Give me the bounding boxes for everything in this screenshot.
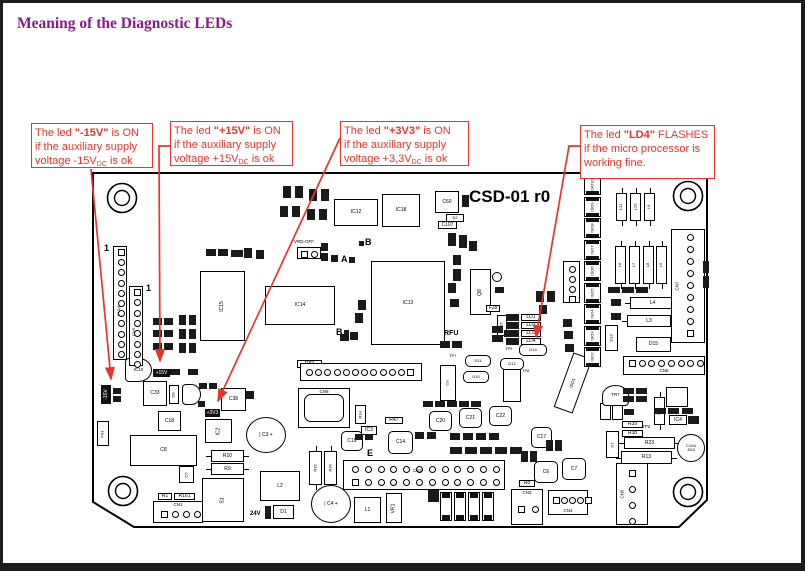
component-label: FS1 [101,430,105,437]
component-L10: L10 [630,193,641,221]
smd-chip [547,291,555,302]
smd-chip [495,447,507,454]
component-label: LD2 [526,323,535,328]
smd-chip [563,319,572,327]
pin-round [183,511,190,518]
component-label: +15V [156,371,168,376]
component-L4: L4 [630,297,675,309]
mounting-hole [116,484,131,499]
pin-round [493,479,500,486]
component-FS1: FS1 [97,421,109,446]
smd-chip [113,396,121,402]
component-D11: D11 [465,355,491,367]
smd-chip [153,318,162,325]
smd-chip [355,434,363,440]
component-S1: S1 [202,478,244,522]
component-C60: C60 [435,191,459,213]
component-label: ISO6 [591,266,595,275]
component-label: IC15 [220,301,225,312]
component-LD4: LD4 [521,338,541,345]
component-label: R36 [329,464,333,471]
smd-chip [471,401,481,407]
component-ISO2: ISO2 [584,347,601,367]
pin-round [365,466,372,473]
pin-round [442,479,449,486]
component-D14: D14 [519,344,547,356]
component-label: LD1 [526,315,535,320]
smd-chip [448,233,456,246]
component-IC4: IC4 [669,415,687,425]
callout-line3-end: is ok [422,153,448,165]
callout-line2: if the auxiliary supply [344,139,446,151]
smd-chip [319,209,327,220]
pin-round [429,466,436,473]
pin-round [687,282,694,289]
connector-label: CN1 [173,503,182,508]
component-label: L6 [618,263,622,267]
pin-round [311,251,318,258]
pin-round [380,369,387,376]
component-C22: C22 [489,406,512,426]
component-ISO5: ISO5 [584,283,601,303]
pin-round [561,497,568,504]
component-label: L7 [632,263,636,267]
pin-round [352,466,359,473]
smd-chip [359,241,364,246]
smd-chip [198,401,205,407]
pin-round [134,351,141,358]
pin-round [134,341,141,348]
callout--15v: The led "-15V" is ONif the auxiliary sup… [31,123,153,168]
smd-chip [636,396,647,402]
component-label: L2 [277,484,283,489]
pin-round [352,369,359,376]
component-label: L10 [634,204,638,211]
component-C7: C7 [562,458,586,480]
component-L6: L6 [615,246,626,284]
pin-round [118,290,125,297]
smd-chip [492,335,503,342]
pin-round [687,234,694,241]
silkscreen-text: VRD-OFF [294,240,314,245]
callout-suf: is ON [420,125,451,137]
component-label: C14 [396,440,405,445]
unit-subscript: DC [239,159,249,166]
pin-round [668,360,675,367]
unit-subscript: DC [412,159,422,166]
component-label: C20 [436,419,445,424]
component-R8: R8 [519,480,535,487]
component-label: R35 [314,464,318,471]
smd-chip [564,331,573,339]
pin-round [134,320,141,327]
pin-round [429,479,436,486]
component-C8: C8 [130,435,197,466]
component-ISO7: ISO7 [584,240,601,260]
component-IC12: IC12 [334,199,378,226]
smd-chip [423,401,433,407]
pin-round [687,258,694,265]
component-label: -15V [104,389,109,400]
component-IC18: IC18 [382,194,420,227]
smd-chip [506,338,519,345]
pin-round [639,360,646,367]
component-label: L3 [646,319,652,324]
callout-suf: FLASHES [655,129,708,141]
silkscreen-text: TP2 [642,425,650,430]
smd-chip [440,341,450,348]
pin-round [577,497,584,504]
smd-chip [349,257,355,263]
component-R47: R47 [385,417,403,424]
smd-chip [113,388,121,394]
smd-chip [624,409,634,415]
connector-label: CN7 [675,281,680,290]
smd-chip [340,334,349,341]
smd-chip [506,322,519,329]
pin-round [629,486,636,493]
component-L2: L2 [260,471,300,501]
pin-round [687,306,694,313]
component-label: | C3 + [259,433,272,438]
component-LD3: LD3 [521,330,541,337]
callout-line3: working fine. [584,157,646,169]
smd-chip [309,189,317,201]
pin-round [480,479,487,486]
component-label: D1 [280,510,286,515]
pin-round [306,369,313,376]
component-ISO8: ISO8 [584,218,601,238]
pin-1-square [407,369,414,376]
pin-round [398,369,405,376]
callout-+3v3: The led "+3V3" is ONif the auxiliary sup… [340,121,469,166]
smd-chip [280,206,288,217]
component-label: LD4 [526,339,535,344]
smd-chip [170,369,180,375]
component-C14: C14 [388,431,413,454]
component-label: D13 [610,334,614,341]
smd-chip [668,408,679,414]
pin-1-square [161,511,168,518]
led-name: "LD4" [624,129,655,141]
component-label: D10 [472,375,479,379]
component-label: R38 [628,431,637,436]
smd-chip [459,401,469,407]
smd-chip [179,343,186,353]
component-label: ISO7 [591,245,595,254]
silkscreen-text: TP7 [449,354,456,358]
pin-round [118,300,125,307]
component-label: VR1 [391,503,396,513]
smd-chip [682,408,693,414]
smd-chip [188,369,198,375]
component-C3+: | C3 + [246,417,286,453]
component-D7: D7 [606,431,619,458]
component-C38: C38 [221,388,246,411]
mounting-hole [115,191,130,206]
pin-round [172,511,179,518]
mounting-hole [681,485,696,500]
smd-chip [256,250,264,259]
smd-chip [355,313,363,323]
component-label: IC18 [396,208,407,213]
smd-chip [415,432,424,439]
component-label: ISO4 [591,309,595,318]
pin-round [678,360,685,367]
smd-chip [189,315,196,325]
smd-chip [189,343,196,353]
pin-round [118,341,125,348]
component-R35: R35 [309,451,322,485]
component-label: ISO5 [591,288,595,297]
led-name: "+15V" [214,125,250,137]
led-name: "-15V" [75,127,109,139]
pin-round [687,270,694,277]
component-D10: D10 [463,371,489,383]
component-label: C8 [160,448,166,453]
pin-round [569,497,576,504]
component-label: C7 [571,467,577,472]
callout-pre: The led [35,127,75,139]
component-label: R13 [642,455,651,460]
component-D8: D8 [169,385,179,404]
component-label: R161 [179,494,191,499]
pin-round [118,280,125,287]
smd-chip [231,250,243,257]
component-label: C33 [150,391,159,396]
smd-chip [462,195,469,207]
smd-chip [447,401,457,407]
component-R36: R36 [324,451,337,485]
smd-chip [506,314,519,321]
component-IC14: IC14 [265,286,335,325]
pin-1-square [118,249,125,256]
component-C6: C6 [534,461,558,483]
component-LD2: LD2 [521,322,541,329]
component-CN8: CN8 [298,388,350,428]
smd-chip [465,447,477,454]
component-label: D14 [529,348,536,352]
component-label: R14 [359,411,363,418]
component-label: R39 [628,422,637,427]
component-label: IC13 [403,301,414,306]
smd-chip [459,235,467,248]
component-label: S1 [221,497,226,503]
smd-chip [427,432,436,439]
smd-chip [164,343,173,350]
silkscreen-text: 1 [146,284,151,293]
smd-chip [703,276,709,288]
component-label: C22 [496,414,505,419]
pin-1-square [687,330,694,337]
component-IC15: IC15 [200,271,245,341]
smd-chip [453,255,461,265]
component-label: C9 [446,380,450,385]
smd-chip [611,313,621,320]
pcb-diagram: CSD-01 r0IC12IC18IC15IC14IC13IC2Q8S1C60D… [3,3,805,571]
smd-chip [463,433,473,440]
component-D1: D1 [273,505,294,519]
component-label: IC3 [365,428,373,433]
component-C18: C18 [158,411,181,431]
page-frame: Meaning of the Diagnostic LEDs CSD-01 r0… [0,0,805,571]
smd-chip [321,189,329,201]
component-label: R23 [645,441,654,446]
smd-chip [489,433,499,440]
callout-+15v: The led "+15V" is ONif the auxiliary sup… [170,121,293,166]
component-part [503,367,521,402]
pin-round [480,466,487,473]
component--15V: -15V [101,385,111,404]
smd-chip [450,447,462,454]
component-part [468,492,480,521]
component-R39: R39 [622,421,643,428]
component-label: L8 [646,263,650,267]
component-IC13: IC13 [371,261,445,345]
component-label: D7 [611,442,615,447]
smd-chip [321,243,328,251]
component-label: D12 [508,362,515,366]
component-L8: L8 [643,246,654,284]
callout-line3-end: is ok [107,155,133,167]
component-C20: C20 [429,411,452,431]
component-label: C6 [543,470,549,475]
pin-round [194,511,201,518]
smd-chip [331,255,338,262]
pin-round [569,266,576,273]
smd-chip [283,186,291,198]
smd-chip [164,318,173,325]
mounting-hole [681,189,696,204]
component-R161: R161 [174,493,195,500]
smd-chip [344,330,349,335]
component-F28: F28 [486,305,500,312]
component-label: F28 [489,306,498,311]
smd-chip [179,329,186,339]
pin-round [687,294,694,301]
pin-1-square [352,479,359,486]
component-LD1: LD1 [521,314,541,321]
silkscreen-text: CSD-01 r0 [469,188,550,205]
pin-round [389,369,396,376]
component-label: TR7 [611,393,620,398]
callout-pre: The led [174,125,214,137]
smd-chip [539,305,547,314]
smd-chip [209,383,217,389]
silkscreen-text: TP9 [505,347,512,351]
pin-round [416,479,423,486]
pin-1-square [629,470,636,477]
component-label: ISO2 [591,352,595,361]
component-label: IC4 [674,418,682,423]
pin-round [569,276,576,283]
component-label: LD3 [526,331,535,336]
smd-chip [244,248,252,258]
component-label: R10 [223,454,232,459]
component-D15: D15 [636,337,671,352]
silkscreen-text: RFU [444,330,458,337]
component-+3V3: +3V3 [205,409,220,417]
smd-chip [655,408,666,414]
smd-chip [189,329,196,339]
component-part [666,387,688,407]
pin-1-square [553,497,560,504]
smd-chip [504,330,519,337]
component-label: L1 [365,508,371,513]
component-label: C18 [165,419,174,424]
callout-line3-end: is ok [249,153,275,165]
smd-chip [365,434,373,440]
smd-chip [450,299,459,307]
smd-chip [179,315,186,325]
pin-round [134,310,141,317]
callout-line2: if the auxiliary supply [35,141,137,153]
component-ISO3: ISO3 [584,326,601,346]
smd-chip [703,261,709,273]
component-label: C17 [537,435,546,440]
smd-chip [295,186,303,198]
component-label: ISO9 [591,202,595,211]
callout-suf: is ON [250,125,281,137]
pin-1-square [569,296,576,303]
smd-chip [530,451,537,462]
component-label: IC2 [216,427,221,435]
component-label: ISO3 [591,331,595,340]
component-D12: D12 [500,358,524,370]
component-R9: R9 [211,463,244,475]
smd-chip [358,300,366,310]
component-label: ISO10 [591,179,595,190]
pin-round [118,351,125,358]
component-C33: C33 [143,381,167,406]
component-label: C5 [185,472,189,477]
pin-round [629,518,636,525]
callout-line2: if the micro processor is [584,143,700,155]
component-label: D15 [649,342,658,347]
pin-round [378,479,385,486]
smd-chip [546,440,553,451]
callout-line3: voltage -15V [35,155,97,167]
component-label: ISO8 [591,223,595,232]
component-ISO4: ISO4 [584,304,601,324]
smd-chip [521,451,528,462]
pin-round [532,506,539,513]
smd-chip [623,396,634,402]
callout-line2: if the auxiliary supply [174,139,276,151]
component-label: IC12 [351,210,362,215]
smd-chip [688,416,699,424]
component-label: Q8 [478,289,483,296]
smd-chip [164,330,173,337]
pin-1-square [134,289,141,296]
smd-chip [428,490,439,502]
smd-chip [469,241,477,251]
silkscreen-text: 24V [250,511,261,517]
component-L9: L9 [644,193,655,221]
component-label: +3V3 [207,411,219,416]
component-C4+: | C4 + [311,485,351,523]
component-D13: D13 [605,325,618,351]
smd-chip [292,206,300,217]
smd-chip [350,332,358,340]
silkscreen-text: TP8 [522,369,529,373]
component-IC2: IC2 [205,419,232,443]
silkscreen-text: B [365,238,372,247]
pin-round [343,369,350,376]
component-label: C107 [442,223,454,228]
connector-label: CN4 [563,509,572,514]
component-label: C10A -B10 [686,444,696,452]
